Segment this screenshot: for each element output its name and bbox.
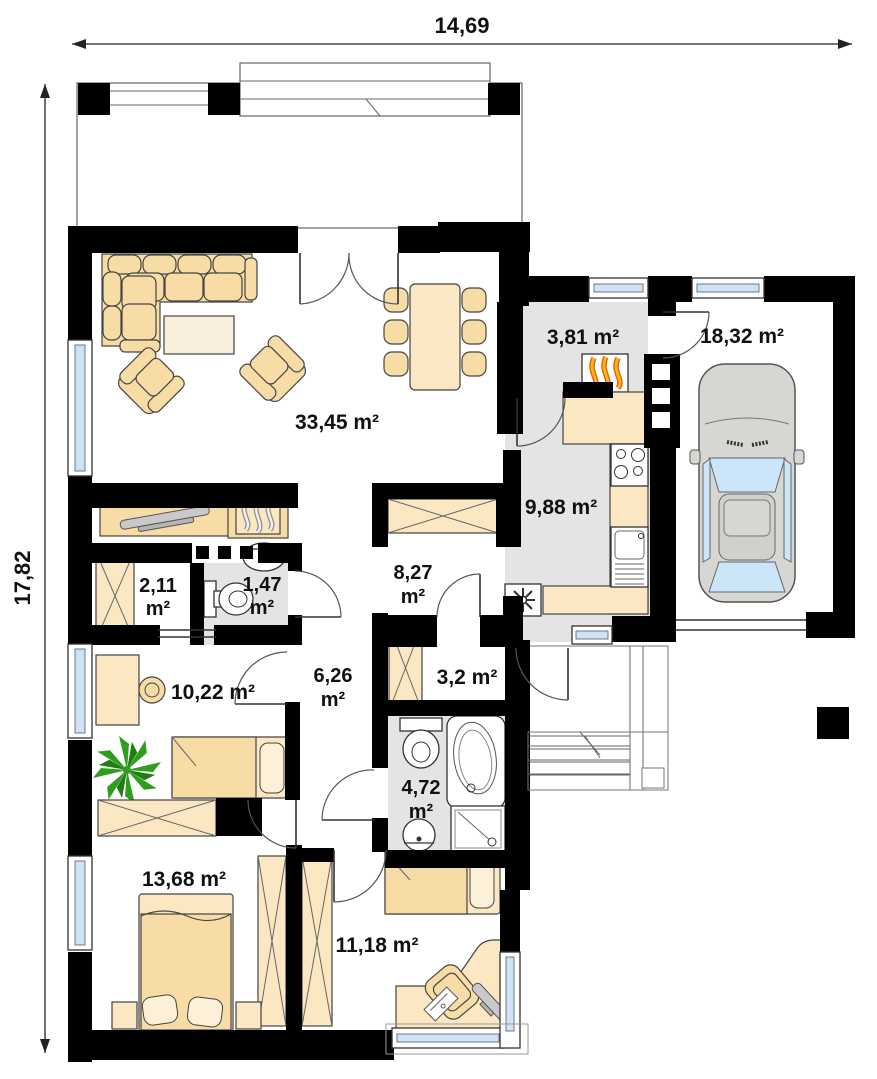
bed-single bbox=[172, 737, 289, 798]
coffee-table bbox=[164, 316, 234, 354]
room-label-living: 33,45 m² bbox=[295, 411, 379, 434]
room-label-kitchen: 9,88 m² bbox=[525, 496, 597, 519]
garage-door bbox=[676, 620, 806, 630]
dimension-height-label: 17,82 bbox=[10, 550, 35, 605]
dimension-left: 17,82 bbox=[10, 84, 50, 1053]
bathtub bbox=[447, 716, 505, 808]
room-label-bedroom-bottom-left: 13,68 m² bbox=[142, 868, 226, 891]
terrace bbox=[77, 63, 522, 228]
room-label-wardrobe-room: 3,2 m² bbox=[437, 666, 498, 689]
terrace-post bbox=[78, 83, 110, 115]
room-label-bathroom: 4,72 bbox=[402, 777, 441, 799]
tv-sideboard bbox=[100, 505, 232, 536]
floor-plan-canvas: 33,45 m² 3,81 m² 18,32 m² 9,88 m² 2,11 m… bbox=[0, 0, 877, 1079]
wardrobe bbox=[302, 856, 332, 1026]
stove bbox=[611, 444, 648, 486]
room-label-hall-unit: m² bbox=[401, 586, 426, 608]
nightstand bbox=[112, 1002, 137, 1029]
shower bbox=[451, 806, 505, 852]
nightstand bbox=[236, 1002, 261, 1029]
room-label-boiler: 3,81 m² bbox=[547, 326, 619, 349]
room-label-bedroom-left: 10,22 m² bbox=[171, 681, 255, 704]
room-label-corridor-unit: m² bbox=[321, 689, 346, 711]
wardrobe bbox=[98, 800, 216, 836]
bathroom-toilet bbox=[400, 718, 442, 768]
kitchen-sink bbox=[611, 527, 648, 587]
wardrobe-room-door bbox=[437, 574, 480, 617]
potted-plant bbox=[93, 736, 161, 804]
bedroom-bottom-right-door bbox=[334, 850, 386, 902]
dimension-width-label: 14,69 bbox=[434, 13, 489, 38]
terrace-double-door bbox=[300, 253, 398, 304]
dining-table-set bbox=[384, 284, 486, 390]
room-label-wc-unit: m² bbox=[250, 597, 275, 619]
armchair bbox=[237, 333, 311, 407]
wc-door bbox=[295, 571, 341, 617]
desk-chair bbox=[139, 677, 165, 703]
entry-porch-steps bbox=[508, 646, 668, 790]
room-label-garage: 18,32 m² bbox=[700, 325, 784, 348]
room-label-bathroom-unit: m² bbox=[409, 801, 434, 823]
room-label-bedroom-bottom-right: 11,18 m² bbox=[336, 934, 419, 957]
bathroom-door bbox=[322, 770, 374, 820]
room-label-wc: 1,47 bbox=[243, 574, 282, 596]
room-label-closet: 2,11 bbox=[139, 575, 177, 597]
hall-wardrobe bbox=[388, 499, 498, 533]
wardrobe bbox=[258, 856, 286, 1026]
room-label-corridor: 6,26 bbox=[314, 665, 353, 687]
dimension-top: 14,69 bbox=[72, 13, 852, 49]
armchair bbox=[113, 345, 187, 419]
bed-double bbox=[139, 894, 233, 1032]
terrace-post bbox=[208, 83, 240, 115]
desk bbox=[96, 655, 139, 725]
room-label-hall: 8,27 bbox=[394, 562, 433, 584]
room-label-closet-unit: m² bbox=[146, 598, 171, 620]
terrace-post bbox=[488, 83, 520, 115]
bathroom-sink bbox=[403, 819, 435, 851]
car bbox=[690, 364, 804, 602]
carport-post bbox=[817, 707, 849, 739]
